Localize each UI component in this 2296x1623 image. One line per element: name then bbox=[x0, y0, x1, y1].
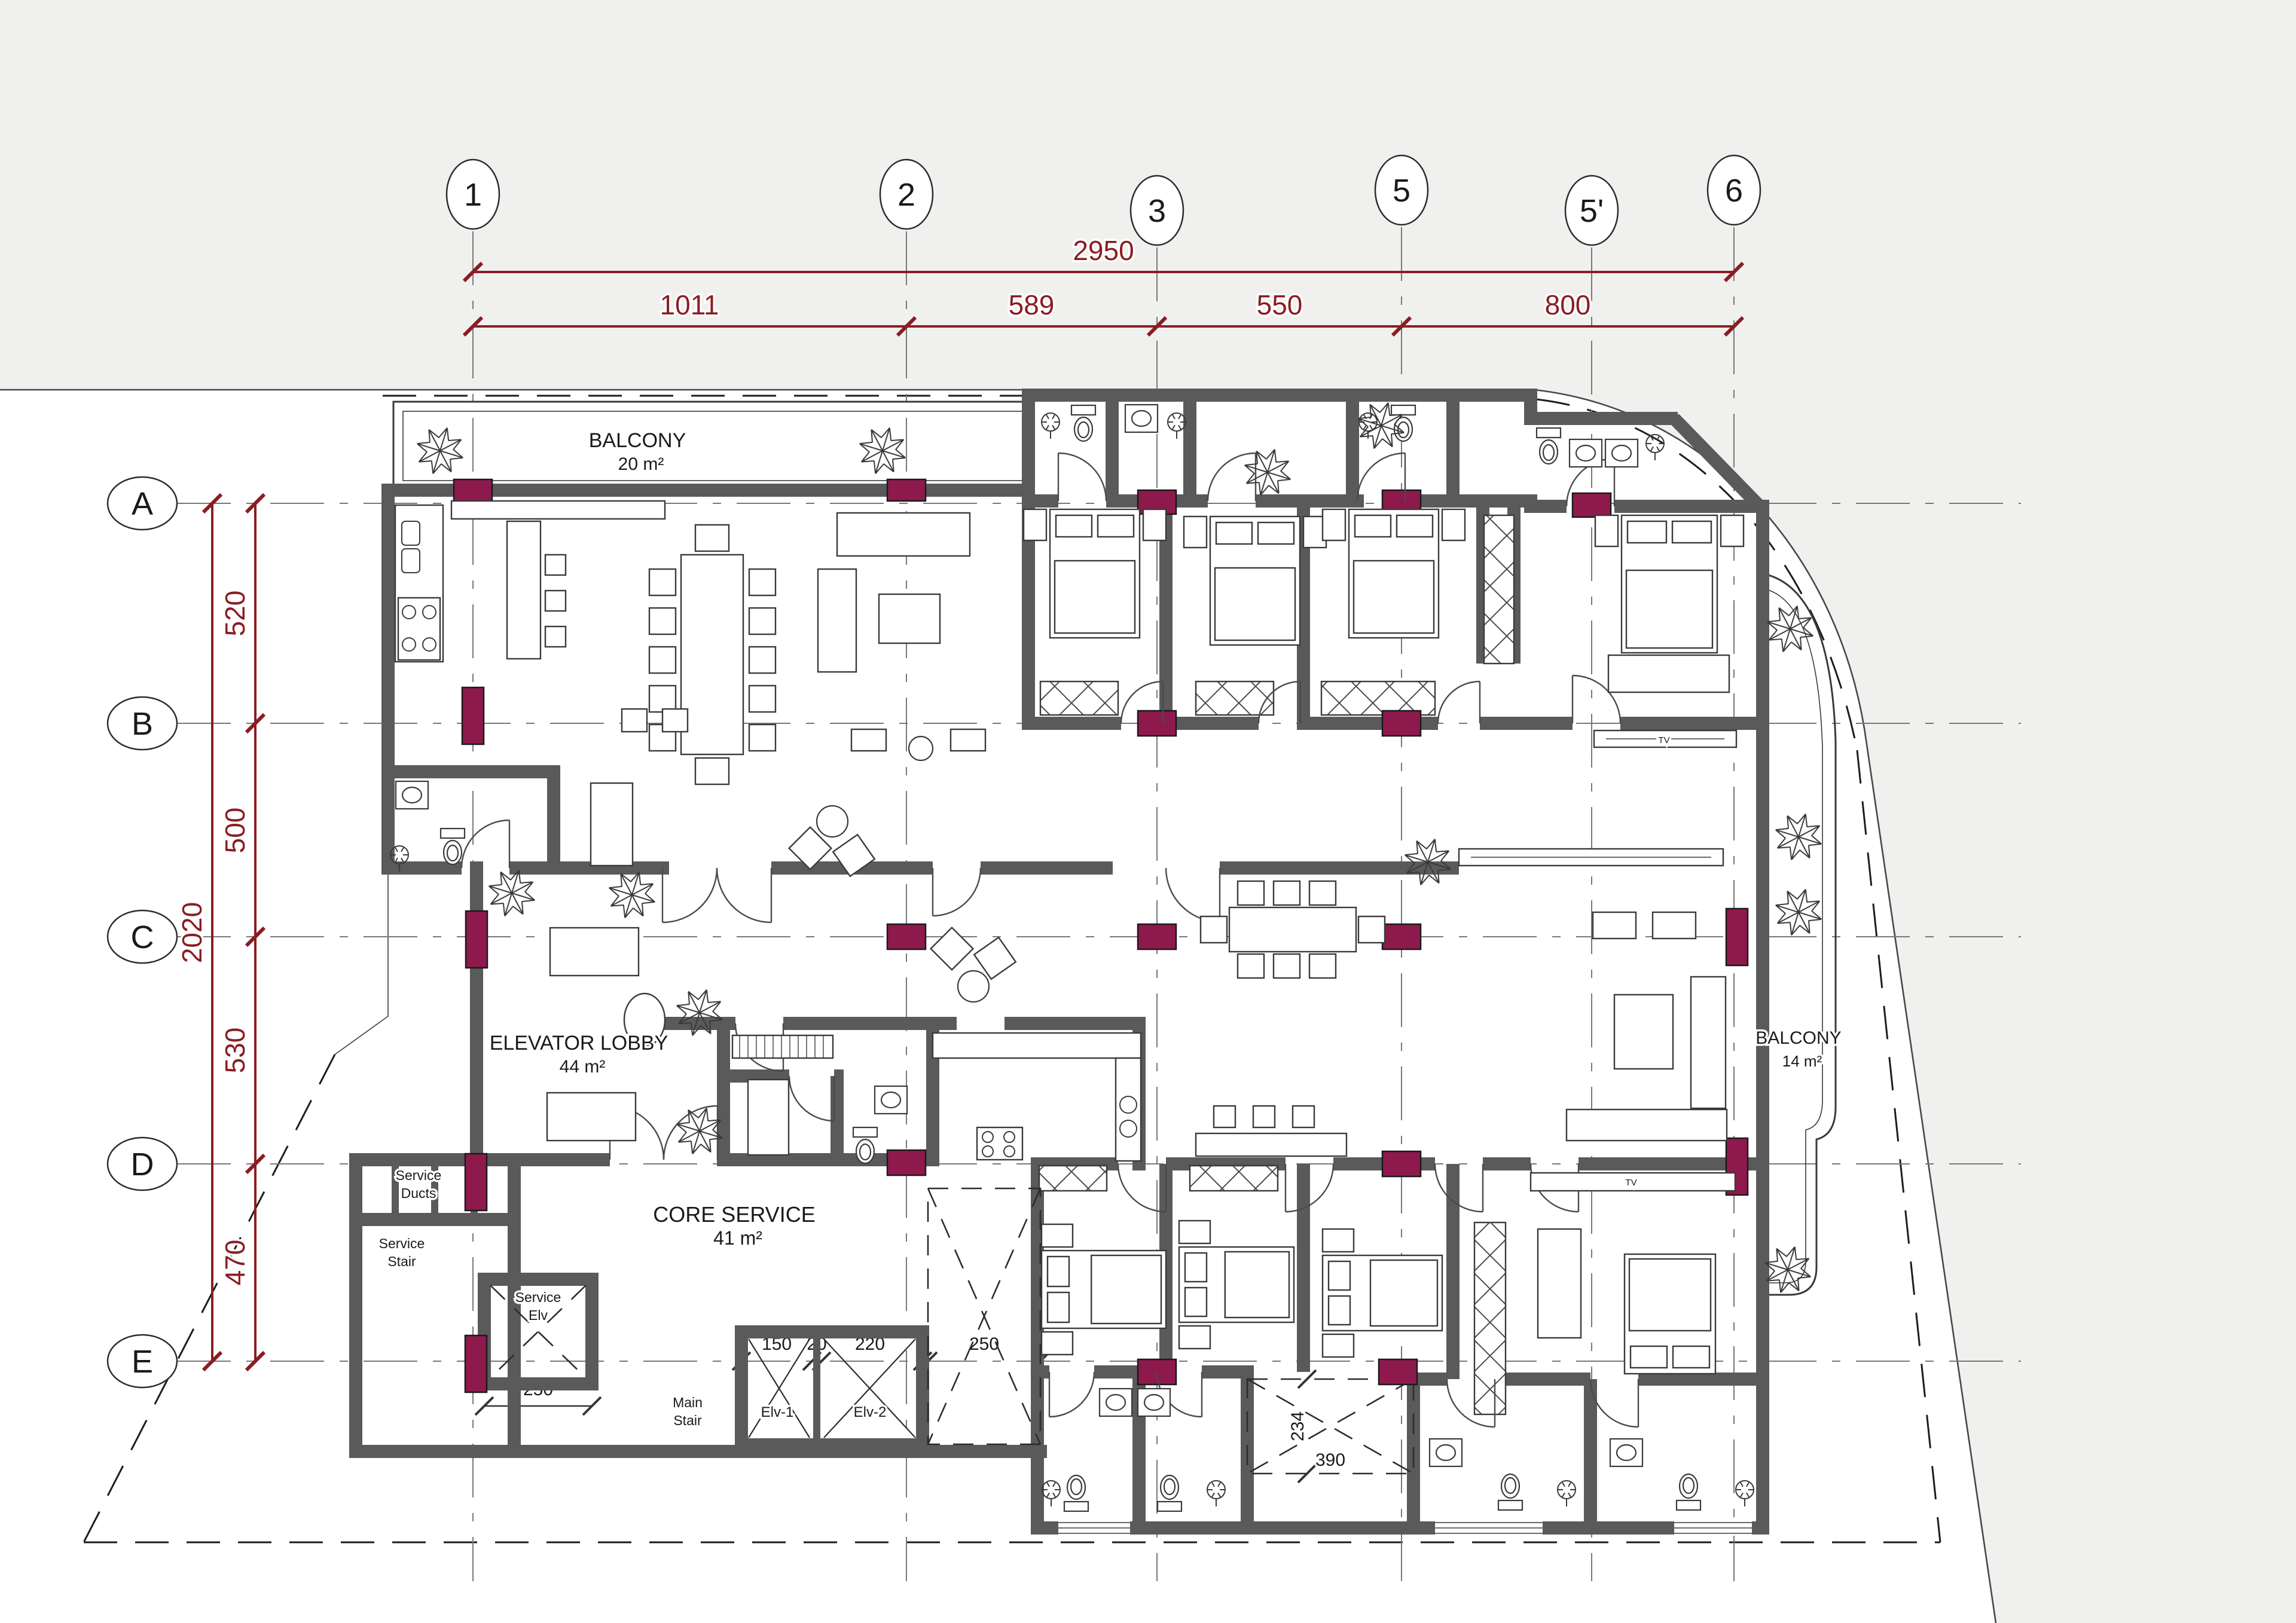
plant-icon bbox=[1776, 890, 1821, 935]
bed-symbol bbox=[1179, 1221, 1294, 1349]
plant-icon bbox=[1765, 1247, 1810, 1292]
sink-icon bbox=[1570, 439, 1602, 467]
plant-icon bbox=[609, 872, 655, 918]
sink-icon bbox=[1138, 1389, 1170, 1416]
grid-bubble-label-5: 5 bbox=[1393, 173, 1410, 209]
sink-icon bbox=[396, 781, 428, 809]
plant-icon bbox=[1776, 814, 1821, 860]
dim-inner: 250 bbox=[969, 1334, 999, 1354]
floor-plan-canvas: 12355'6ABCDE 295010115895508002020520500… bbox=[0, 0, 2296, 1623]
small-label: Service bbox=[379, 1236, 425, 1251]
grid-bubble-label-5': 5' bbox=[1580, 193, 1604, 229]
dim-inner: 234 bbox=[1288, 1411, 1308, 1441]
sink-icon bbox=[1430, 1439, 1462, 1466]
dim-top-seg: 800 bbox=[1545, 289, 1591, 320]
small-label: TV bbox=[1658, 735, 1669, 745]
toilet-icon bbox=[1677, 1474, 1700, 1510]
small-label: Stair bbox=[673, 1413, 702, 1428]
bed-symbol bbox=[1595, 515, 1744, 653]
sink-icon bbox=[1610, 1439, 1642, 1466]
small-label: Service bbox=[515, 1289, 561, 1305]
plant-icon bbox=[1245, 450, 1290, 495]
dim-left-seg: 530 bbox=[219, 1028, 251, 1074]
small-label: TV bbox=[1625, 1178, 1636, 1188]
plant-icon bbox=[860, 428, 905, 473]
room-area-label: 20 m² bbox=[618, 454, 664, 474]
small-label: Stair bbox=[387, 1254, 416, 1269]
shafts bbox=[490, 1188, 1413, 1474]
grid-bubble-label-2: 2 bbox=[897, 177, 915, 213]
room-area-label: 41 m² bbox=[713, 1227, 762, 1249]
bed-symbol bbox=[1024, 509, 1166, 638]
small-label: Main bbox=[673, 1395, 703, 1410]
small-label: Ducts bbox=[401, 1185, 436, 1201]
room-label: ELEVATOR LOBBY bbox=[490, 1032, 668, 1055]
grid-bubble-label-1: 1 bbox=[464, 177, 482, 213]
plant-icon bbox=[489, 870, 535, 916]
dim-top-seg: 1011 bbox=[660, 289, 719, 320]
plant-icon bbox=[417, 428, 463, 473]
small-label: Elv bbox=[529, 1307, 548, 1323]
bed-symbol bbox=[1625, 1254, 1715, 1374]
grid-bubble-label-6: 6 bbox=[1725, 173, 1743, 209]
toilet-icon bbox=[1498, 1474, 1522, 1510]
room-label: BALCONY bbox=[1755, 1028, 1841, 1048]
plant-icon bbox=[677, 1108, 722, 1154]
room-label: BALCONY bbox=[589, 429, 686, 452]
bed-symbol bbox=[1042, 1224, 1166, 1355]
room-area-label: 44 m² bbox=[560, 1057, 606, 1077]
shower-icon bbox=[1558, 1481, 1576, 1506]
sink-icon bbox=[1100, 1389, 1132, 1416]
dim-top-seg: 550 bbox=[1257, 289, 1303, 320]
toilet-icon bbox=[1158, 1475, 1181, 1511]
dim-inner: 390 bbox=[1315, 1450, 1345, 1470]
room-area-label: 14 m² bbox=[1782, 1052, 1822, 1070]
dim-top-seg: 589 bbox=[1009, 289, 1055, 320]
toilet-icon bbox=[1537, 428, 1561, 464]
grid-bubble-label-A: A bbox=[132, 486, 153, 522]
dim-left-seg: 470 bbox=[219, 1240, 251, 1286]
sink-icon bbox=[1605, 439, 1638, 467]
grid-bubble-label-C: C bbox=[131, 919, 154, 955]
grid-bubble-label-B: B bbox=[132, 706, 153, 742]
toilet-icon bbox=[1071, 405, 1095, 441]
room-label: CORE SERVICE bbox=[653, 1202, 815, 1227]
shower-icon bbox=[1042, 413, 1060, 439]
small-label: Elv-2 bbox=[854, 1404, 887, 1420]
grid-bubble-label-3: 3 bbox=[1148, 193, 1166, 229]
floor-plan-drawing: 12355'6ABCDE 295010115895508002020520500… bbox=[0, 0, 2296, 1623]
plant-icon bbox=[1767, 606, 1813, 652]
dim-top-total: 2950 bbox=[1073, 235, 1134, 266]
grid-bubble-label-D: D bbox=[131, 1147, 154, 1182]
shower-icon bbox=[1168, 413, 1186, 439]
toilet-icon bbox=[1064, 1475, 1088, 1511]
sink-icon bbox=[1125, 405, 1158, 432]
shower-icon bbox=[1207, 1481, 1225, 1506]
dim-left-seg: 500 bbox=[219, 808, 251, 854]
shower-icon bbox=[1042, 1481, 1060, 1506]
toilet-icon bbox=[441, 829, 465, 864]
dim-left-seg: 520 bbox=[219, 591, 251, 637]
dim-left-total: 2020 bbox=[176, 902, 207, 963]
shower-icon bbox=[1736, 1481, 1754, 1506]
bed-symbol bbox=[1323, 509, 1465, 638]
small-label: Service bbox=[396, 1167, 442, 1183]
bed-symbol bbox=[1323, 1229, 1442, 1357]
grid-bubble-label-E: E bbox=[132, 1344, 153, 1380]
sink-icon bbox=[875, 1086, 907, 1114]
furniture-layer bbox=[390, 403, 1821, 1511]
small-label: Elv-1 bbox=[761, 1404, 794, 1420]
